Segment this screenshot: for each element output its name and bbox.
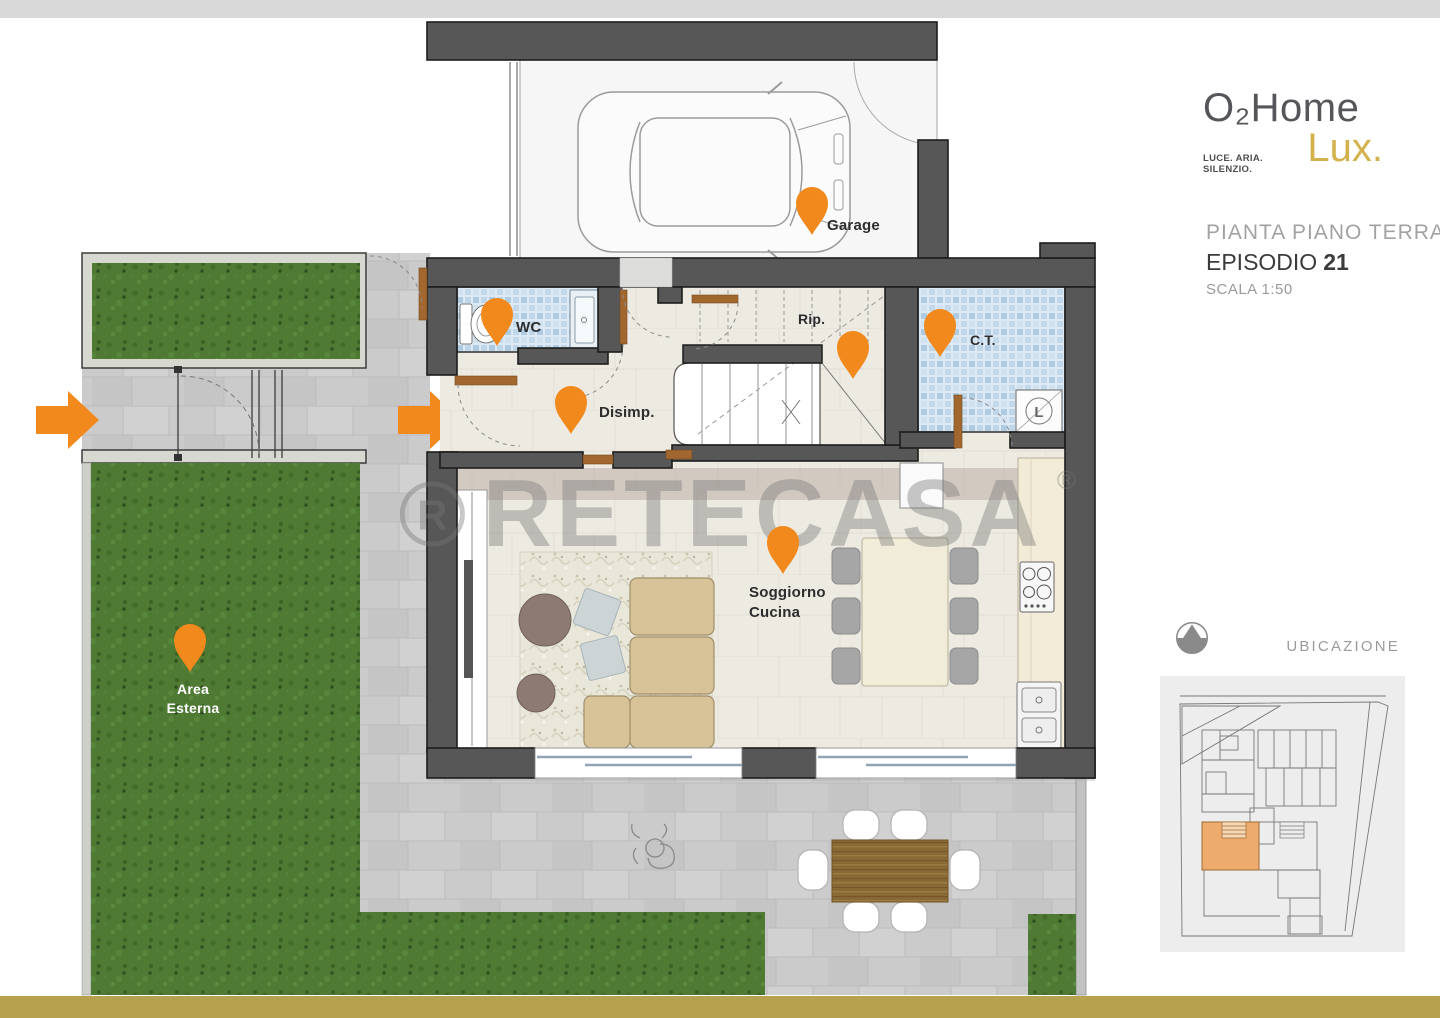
scale-label: SCALA 1:50	[1206, 281, 1416, 298]
pin-rip	[835, 330, 871, 380]
ubicazione-label: UBICAZIONE	[1240, 638, 1400, 655]
north-compass-icon	[1172, 618, 1212, 658]
title-block: PIANTA PIANO TERRA EPISODIO21 SCALA 1:50	[1206, 221, 1416, 298]
pouf	[519, 594, 571, 646]
wc-label: WC	[516, 318, 541, 338]
soggiorno-cucina-label: Soggiorno Cucina	[749, 583, 826, 623]
pin-wc	[479, 297, 515, 347]
garage-threshold	[620, 258, 672, 287]
footer-gold-bar	[0, 996, 1440, 1018]
episode-title: EPISODIO21	[1206, 249, 1416, 276]
garage-label: Garage	[827, 216, 880, 236]
plan-subtitle: PIANTA PIANO TERRA	[1206, 221, 1416, 245]
rip-label: Rip.	[798, 309, 825, 329]
pin-disimp	[553, 385, 589, 435]
pin-soggiorno	[765, 525, 801, 575]
ct-label: C.T.	[970, 330, 996, 350]
kitchen-counter	[1017, 458, 1065, 748]
area-esterna-label: Area Esterna	[145, 680, 241, 718]
svg-text:L: L	[1034, 404, 1043, 421]
outdoor-table	[832, 840, 948, 902]
brand-name: O₂Home	[1203, 88, 1383, 128]
pin-garage	[794, 186, 830, 236]
floor-plan-page: L	[0, 0, 1440, 1018]
tv-unit	[464, 560, 473, 678]
pin-area-esterna	[172, 623, 208, 673]
pouf	[517, 674, 555, 712]
pin-ct	[922, 308, 958, 358]
brand-tagline: LUCE. ARIA. SILENZIO.	[1203, 153, 1307, 175]
dining-table	[862, 538, 948, 686]
brand-sub-name: Lux.	[1307, 130, 1383, 166]
washing-machine-icon: L	[1016, 390, 1062, 432]
site-plan-map	[1160, 676, 1405, 952]
disimp-label: Disimp.	[599, 403, 655, 423]
brand-logo: O₂Home LUCE. ARIA. SILENZIO. Lux.	[1203, 88, 1383, 175]
fridge-column	[900, 463, 943, 508]
wc-sink	[570, 290, 599, 350]
